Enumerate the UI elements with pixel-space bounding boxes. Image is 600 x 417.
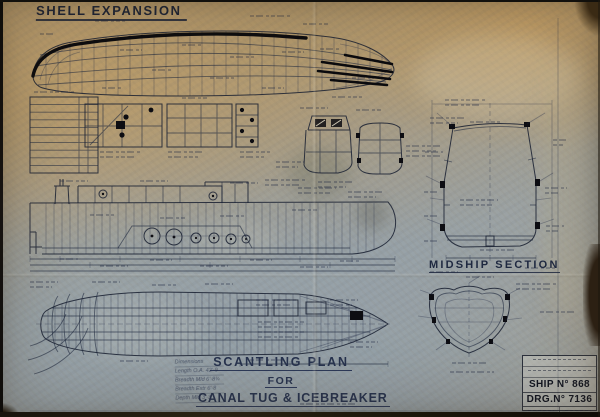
small-section-views: [304, 116, 404, 174]
photo-edge: [0, 0, 3, 417]
ship-number: SHIP N° 868: [523, 378, 596, 393]
photo-edge: [0, 0, 600, 2]
blueprint-photo: SHELL EXPANSION MIDSHIP SECTION SCANTLIN…: [0, 0, 600, 417]
shell-expansion-drawing: [33, 27, 394, 97]
main-title-line2: FOR: [265, 375, 298, 388]
scantling-table: [30, 97, 98, 173]
title-block-maker-line: [523, 359, 596, 367]
dimensions-line: Depth Mld 3'·3: [175, 393, 224, 403]
photo-edge: [0, 412, 600, 417]
body-plan-drawing: [418, 276, 522, 359]
principal-dimensions-note: Dimensions Length O.A. 42'·9 Breadth Mld…: [175, 357, 225, 403]
shell-expansion-title: SHELL EXPANSION: [36, 3, 187, 21]
midship-section-drawing: [426, 100, 554, 261]
drawing-number-block: SHIP N° 868 DRG.N° 7136: [522, 355, 597, 411]
main-title-line3: CANAL TUG & ICEBREAKER: [196, 391, 390, 407]
title-block-place-line: [523, 370, 596, 378]
drawing-number: DRG.N° 7136: [523, 393, 596, 408]
profile-view: [30, 179, 396, 271]
main-title-line1: SCANTLING PLAN: [210, 355, 352, 371]
annotation-texts: [30, 16, 574, 404]
midship-section-title: MIDSHIP SECTION: [429, 259, 560, 273]
deck-plan-structures: [85, 104, 258, 147]
